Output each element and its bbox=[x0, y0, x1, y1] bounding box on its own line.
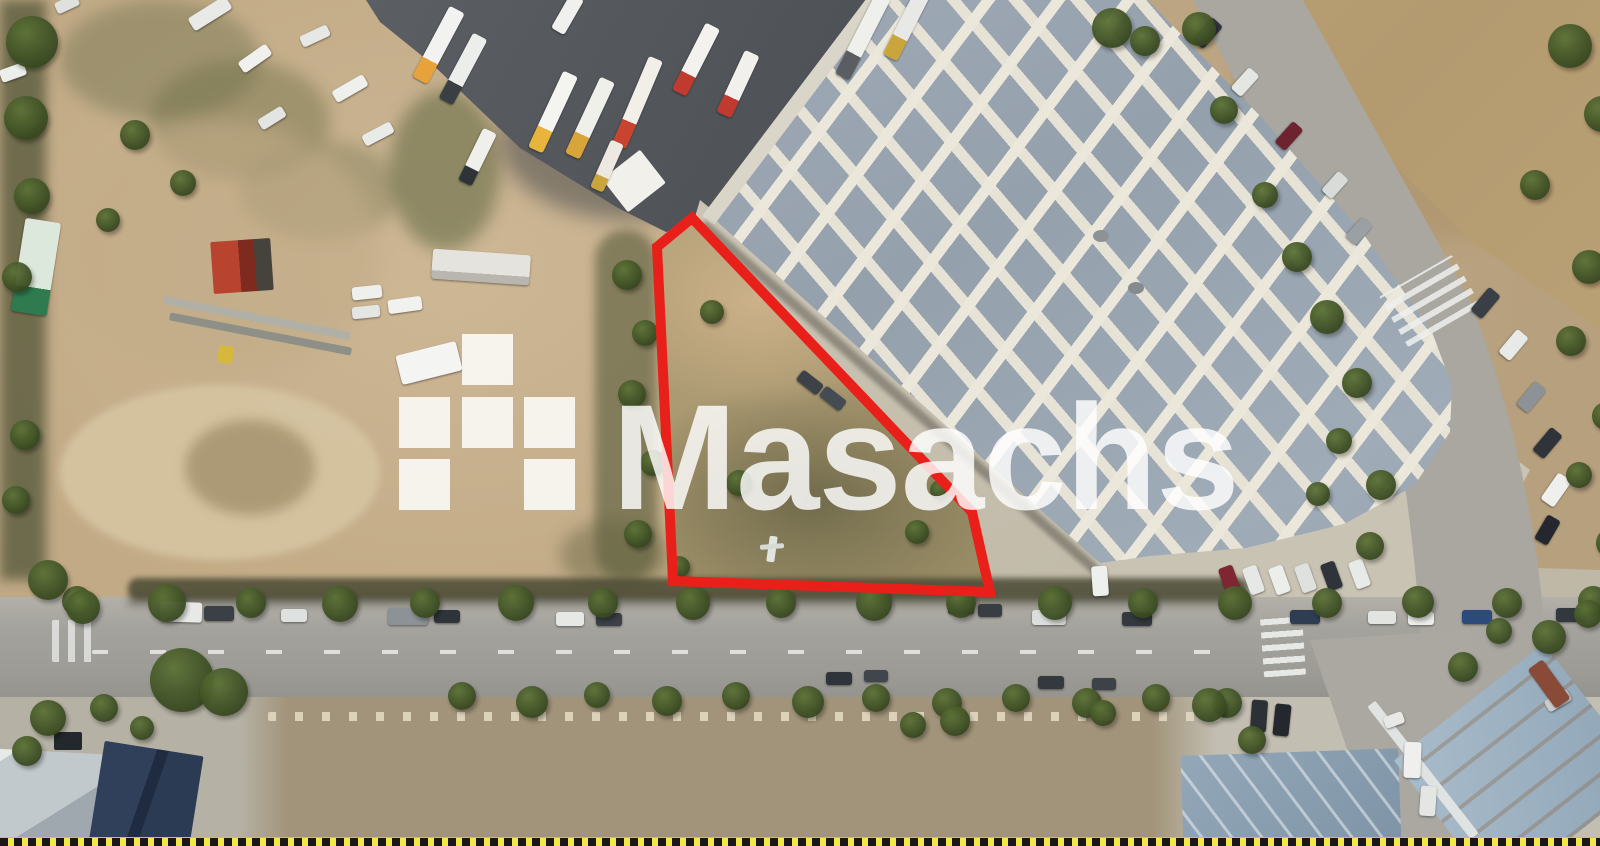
logo-square bbox=[524, 459, 575, 510]
watermark-text: Masachs bbox=[612, 382, 1239, 532]
aerial-photo: Masachs bbox=[0, 0, 1600, 846]
logo-square bbox=[462, 334, 513, 385]
logo-square bbox=[524, 397, 575, 448]
logo-square bbox=[399, 459, 450, 510]
selection-marquee-bottom bbox=[0, 837, 1600, 846]
logo-square bbox=[462, 397, 513, 448]
logo-square bbox=[399, 397, 450, 448]
